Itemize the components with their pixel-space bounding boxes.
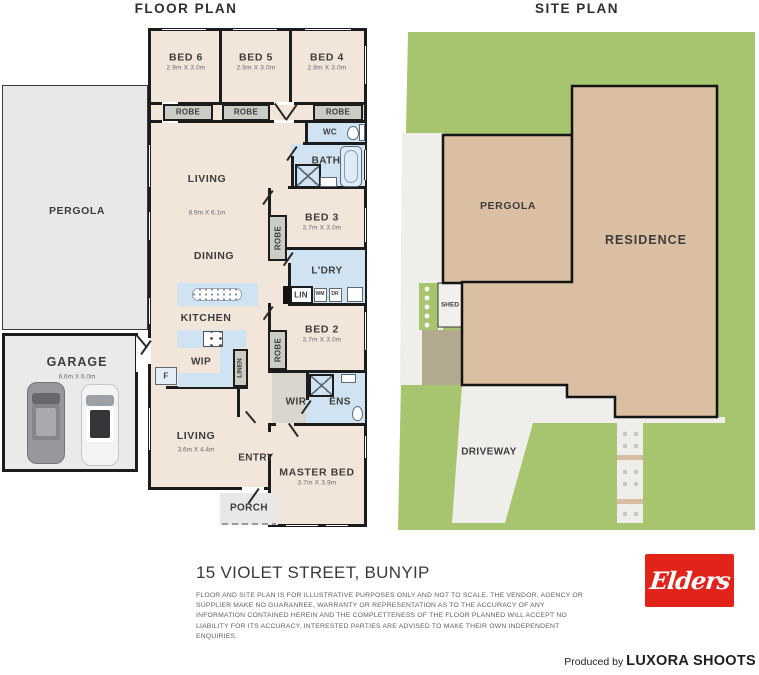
wip-label: WIP xyxy=(191,356,211,368)
bath-label: BATH xyxy=(312,155,341,167)
producer-name: LUXORA SHOOTS xyxy=(626,653,756,669)
robe-bed5-label: ROBE xyxy=(234,107,258,116)
property-address: 15 VIOLET STREET, BUNYIP xyxy=(196,563,430,583)
dining-label: DINING xyxy=(194,250,234,262)
pergola-floor-label: PERGOLA xyxy=(49,205,105,217)
living-main-label: LIVING xyxy=(188,173,227,185)
wm-label: WM xyxy=(316,292,325,298)
elders-logo: Elders xyxy=(645,554,734,607)
bed3-label: BED 33.7m X 3.0m xyxy=(302,212,341,233)
garage-dims-label: 6.6m X 6.0m xyxy=(59,373,96,380)
master-bed-label: MASTER BED3.7m X 3.9m xyxy=(279,467,354,488)
porch-label: PORCH xyxy=(230,502,268,514)
dr-label: DR xyxy=(331,292,338,298)
fridge-label: F xyxy=(163,371,168,380)
disclaimer-text: FLOOR AND SITE PLAN IS FOR ILLUSTRATIVE … xyxy=(196,591,588,642)
ens-label: ENS xyxy=(329,396,351,408)
entry-label: ENTRY xyxy=(238,452,274,464)
wir-label: WIR xyxy=(286,396,307,408)
floor-and-site-plan-page: FLOOR PLAN SITE PLAN xyxy=(0,0,759,675)
robe-bed2-label: ROBE xyxy=(273,338,282,362)
bed5-label: BED 52.9m X 3.0m xyxy=(236,52,275,73)
robe-bed3-label: ROBE xyxy=(273,226,282,250)
garage-label: GARAGE xyxy=(47,355,108,369)
living-main-dims-label: 8.9m X 6.1m xyxy=(189,209,226,216)
lin-label: LIN xyxy=(294,290,308,299)
pergola-site-label: PERGOLA xyxy=(480,200,536,212)
robe-bed4-label: ROBE xyxy=(326,107,350,116)
elders-logo-text: Elders xyxy=(648,566,731,595)
wc-label: WC xyxy=(323,127,337,136)
produced-by-line: Produced by LUXORA SHOOTS xyxy=(564,652,756,670)
driveway-label: DRIVEWAY xyxy=(461,446,517,458)
kitchen-label: KITCHEN xyxy=(181,312,232,324)
produced-by-label: Produced by xyxy=(564,656,626,668)
living2-dims-label: 3.6m X 4.4m xyxy=(178,446,215,453)
linen-label: LINEN xyxy=(236,358,243,378)
bed4-label: BED 42.9m X 3.0m xyxy=(307,52,346,73)
bed6-label: BED 62.9m X 3.0m xyxy=(166,52,205,73)
bed2-label: BED 23.7m X 3.0m xyxy=(302,324,341,345)
residence-label: RESIDENCE xyxy=(605,233,687,247)
shed-label: SHED xyxy=(441,301,459,308)
living2-label: LIVING xyxy=(177,430,216,442)
laundry-label: L'DRY xyxy=(311,265,342,277)
robe-bed6-label: ROBE xyxy=(176,107,200,116)
